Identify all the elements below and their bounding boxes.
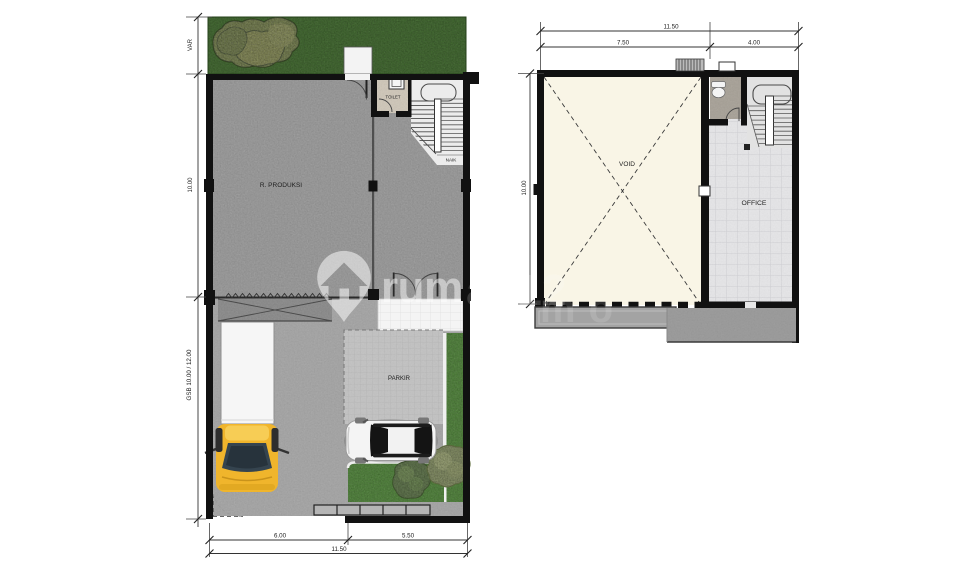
- svg-text:7.50: 7.50: [617, 40, 630, 47]
- svg-text:R. PRODUKSI: R. PRODUKSI: [260, 182, 302, 189]
- svg-text:m o: m o: [540, 287, 614, 331]
- svg-text:NAIK: NAIK: [446, 158, 458, 163]
- svg-text:VAR: VAR: [188, 38, 194, 51]
- svg-text:VOID: VOID: [619, 161, 635, 168]
- svg-text:10.00: 10.00: [188, 177, 194, 193]
- svg-text:11.50: 11.50: [663, 24, 679, 31]
- svg-text:PARKIR: PARKIR: [388, 376, 411, 382]
- svg-text:4.00: 4.00: [748, 40, 761, 47]
- svg-text:6.00: 6.00: [274, 533, 287, 540]
- svg-text:rum: rum: [381, 263, 463, 312]
- svg-text:5.50: 5.50: [402, 533, 415, 540]
- svg-text:OFFICE: OFFICE: [742, 200, 767, 207]
- svg-text:11.50: 11.50: [331, 546, 347, 553]
- svg-text:GSB 10.00 / 12.00: GSB 10.00 / 12.00: [186, 349, 193, 400]
- svg-text:10.00: 10.00: [522, 180, 528, 196]
- svg-text:TOILET: TOILET: [386, 95, 401, 100]
